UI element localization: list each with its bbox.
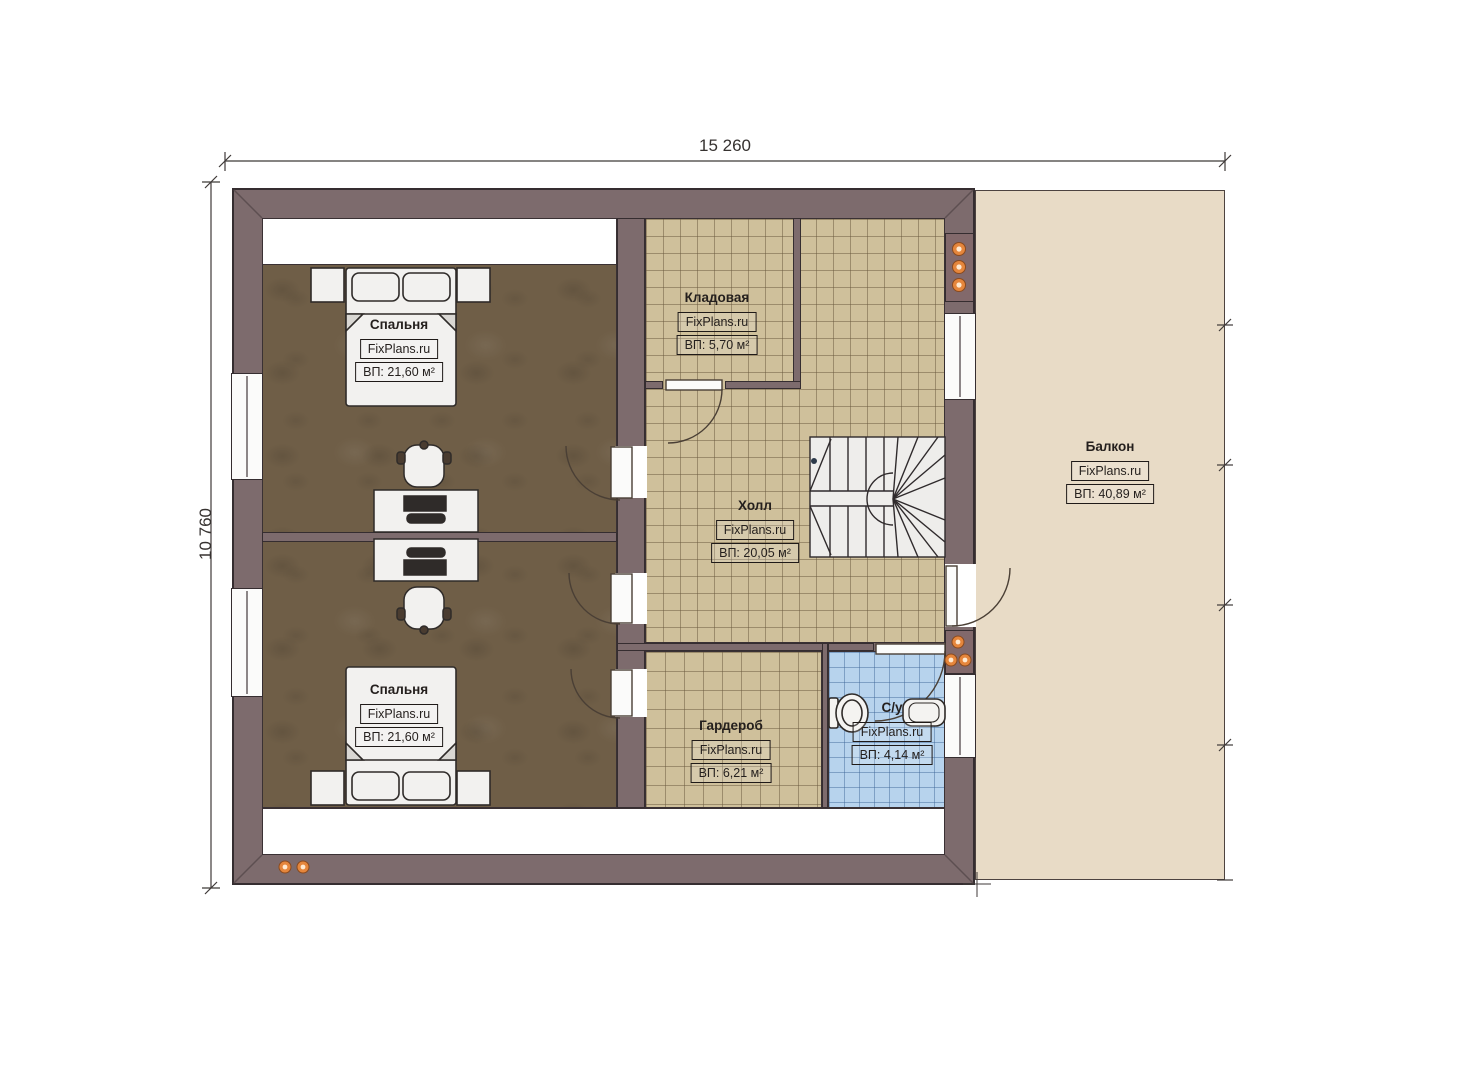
- room-name: Холл: [738, 498, 772, 514]
- room-area: ВП: 40,89 м²: [1066, 484, 1154, 504]
- room-name: Гардероб: [699, 718, 763, 734]
- watermark: FixPlans.ru: [360, 339, 439, 359]
- room-label-balcony: Балкон FixPlans.ru ВП: 40,89 м²: [1066, 439, 1154, 504]
- room-area: ВП: 6,21 м²: [691, 763, 772, 783]
- watermark: FixPlans.ru: [853, 722, 932, 742]
- desk-top-icon: [374, 490, 478, 532]
- floor-plan-canvas: Спальня FixPlans.ru ВП: 21,60 м² Кладова…: [0, 0, 1473, 1080]
- room-name: Спальня: [370, 317, 428, 333]
- watermark: FixPlans.ru: [360, 704, 439, 724]
- watermark: FixPlans.ru: [716, 520, 795, 540]
- room-label-bedroom-top: Спальня FixPlans.ru ВП: 21,60 м²: [355, 317, 443, 382]
- room-name: Балкон: [1086, 439, 1135, 455]
- room-name: Спальня: [370, 682, 428, 698]
- dimension-width-label: 15 260: [225, 136, 1225, 156]
- wall-dots-bottom-left: [279, 861, 309, 873]
- room-area: ВП: 21,60 м²: [355, 727, 443, 747]
- room-label-hall: Холл FixPlans.ru ВП: 20,05 м²: [711, 498, 799, 563]
- watermark: FixPlans.ru: [678, 312, 757, 332]
- chair-bottom-icon: [397, 587, 451, 634]
- room-name: Кладовая: [685, 290, 750, 306]
- room-label-bathroom: С/у FixPlans.ru ВП: 4,14 м²: [852, 700, 933, 765]
- room-label-wardrobe: Гардероб FixPlans.ru ВП: 6,21 м²: [691, 718, 772, 783]
- flue-dots-bottom: [945, 636, 971, 666]
- staircase-icon: [810, 437, 945, 557]
- room-area: ВП: 21,60 м²: [355, 362, 443, 382]
- watermark: FixPlans.ru: [692, 740, 771, 760]
- flue-dots-top: [953, 243, 966, 292]
- room-area: ВП: 20,05 м²: [711, 543, 799, 563]
- room-label-bedroom-bottom: Спальня FixPlans.ru ВП: 21,60 м²: [355, 682, 443, 747]
- room-label-storage: Кладовая FixPlans.ru ВП: 5,70 м²: [677, 290, 758, 355]
- room-name: С/у: [881, 700, 902, 716]
- watermark: FixPlans.ru: [1071, 461, 1150, 481]
- chair-top-icon: [397, 441, 451, 487]
- room-area: ВП: 4,14 м²: [852, 745, 933, 765]
- desk-bottom-icon: [374, 539, 478, 581]
- dimension-height-label: 10 760: [196, 489, 216, 579]
- room-area: ВП: 5,70 м²: [677, 335, 758, 355]
